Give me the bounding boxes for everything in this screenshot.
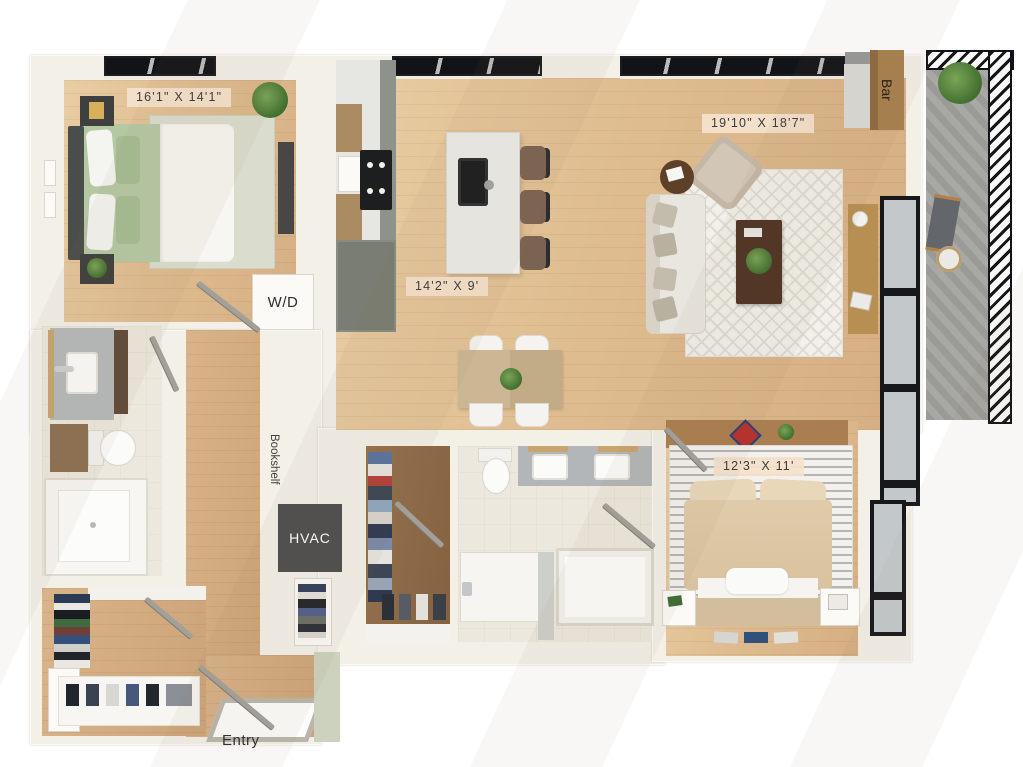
- bedroom1-bed-white-duvet: [160, 124, 234, 262]
- hvac-label: HVAC: [289, 530, 331, 546]
- washer-dryer-label: W/D: [268, 294, 299, 311]
- balcony-plant: [938, 62, 982, 104]
- bedroom2-dimension-label: 12'3" X 11': [714, 457, 804, 476]
- kitchen-upper-cabinet: [336, 104, 362, 152]
- bath2-sink: [594, 454, 630, 480]
- nightstand-art: [828, 594, 848, 610]
- shower-drain: [90, 522, 96, 528]
- linen-closet-clothes: [298, 584, 326, 638]
- coffee-table-book: [744, 228, 762, 237]
- bar-stool: [520, 146, 546, 180]
- entry-exterior-strip: [314, 652, 340, 742]
- balcony-railing-right: [988, 50, 1012, 424]
- window-bedroom1: [104, 56, 216, 76]
- bedroom1-pillow: [86, 193, 116, 251]
- closet1-shoes: [66, 684, 192, 706]
- bath2-shower-cabinet: [460, 552, 540, 622]
- bath1-sink: [66, 352, 98, 394]
- bar-stool: [520, 190, 546, 224]
- dining-centerpiece-plant: [500, 368, 522, 390]
- bedroom1-nightstand-lamp: [89, 102, 104, 119]
- toilet-bowl: [100, 430, 136, 466]
- bedroom2-foot-duvet: [688, 598, 828, 626]
- sofa-pillow: [653, 267, 678, 292]
- window-bedroom2-right: [870, 500, 906, 636]
- sofa-pillow: [652, 232, 677, 257]
- bath1-tall-cabinet: [114, 330, 128, 414]
- bar-label: Bar: [879, 79, 895, 101]
- bath2-faucet: [462, 582, 472, 596]
- bath1-vanity-trim: [48, 330, 54, 418]
- bathtub: [556, 548, 654, 626]
- bedroom1-headboard: [68, 126, 84, 260]
- bar-stool: [520, 236, 546, 270]
- closet1-hanging-clothes: [54, 594, 90, 668]
- wall-art: [44, 192, 56, 218]
- bedroom1-media-console: [278, 142, 294, 234]
- balcony-side-table: [936, 246, 962, 272]
- closet2-shoes: [382, 594, 446, 620]
- bedroom2-white-pillow: [726, 568, 788, 594]
- living-dimension-label: 19'10" X 18'7": [702, 114, 814, 133]
- bar-backsplash: [844, 64, 872, 128]
- bath2-divider-wall: [538, 552, 554, 640]
- dining-chair: [470, 404, 502, 426]
- bedroom1-nightstand-plant: [87, 258, 107, 278]
- bath1-faucet: [54, 366, 74, 372]
- bath2-vanity-trim: [598, 446, 638, 452]
- hvac-closet: HVAC: [278, 504, 342, 572]
- wall-art: [44, 160, 56, 186]
- bedroom1-dimension-label: 16'1" X 14'1": [127, 88, 231, 107]
- bedroom2-book: [714, 631, 739, 643]
- floorplan: 16'1" X 14'1" W/D 14'2" X 9' 19'10" X 18…: [0, 0, 1023, 767]
- kitchen-lower-cabinets: [336, 240, 396, 332]
- bedroom2-plant: [778, 424, 794, 440]
- washer-dryer-unit: W/D: [252, 274, 314, 330]
- window-living: [620, 56, 846, 76]
- desk-lamp: [853, 212, 867, 226]
- bath2-vanity-trim: [528, 446, 568, 452]
- closet2-bottom-shelf: [366, 624, 450, 642]
- closet2-hanging-clothes: [368, 452, 392, 602]
- island-faucet: [484, 180, 494, 190]
- bedroom2-book: [744, 632, 768, 643]
- bedroom1-pillow-green: [116, 196, 140, 244]
- entry-label: Entry: [222, 732, 260, 749]
- bedroom1-pillow: [86, 129, 117, 187]
- kitchen-stove: [360, 150, 392, 210]
- kitchen-upper-cabinet: [336, 194, 362, 242]
- window-kitchen: [392, 56, 542, 76]
- window-living-right: [880, 196, 920, 506]
- bedroom2-book: [774, 631, 799, 643]
- coffee-table-plant: [746, 248, 772, 274]
- stove-burners: [367, 162, 373, 168]
- bedroom1-pillow-green: [116, 136, 140, 184]
- bath2-sink: [532, 454, 568, 480]
- dining-chair: [516, 404, 548, 426]
- bedroom1-corner-plant: [252, 82, 288, 118]
- bath1-wood-cabinet: [50, 424, 88, 472]
- toilet2-bowl: [482, 458, 510, 494]
- kitchen-dimension-label: 14'2" X 9': [406, 277, 488, 296]
- nightstand-green-book: [667, 595, 682, 607]
- bar-counter: Bar: [870, 50, 904, 130]
